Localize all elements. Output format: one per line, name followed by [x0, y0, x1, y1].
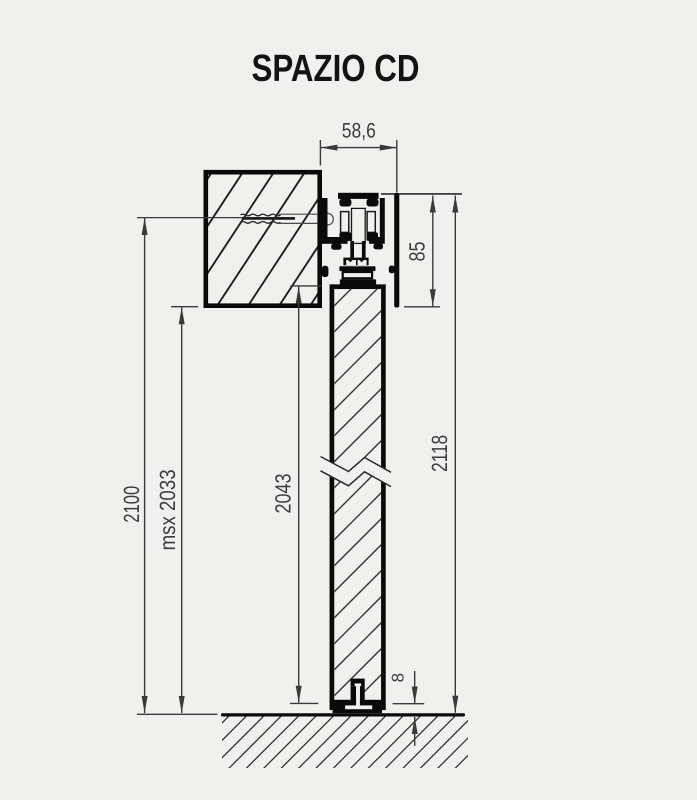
- svg-text:8: 8: [389, 673, 408, 682]
- svg-text:2100: 2100: [119, 486, 144, 523]
- svg-text:2118: 2118: [427, 435, 452, 472]
- svg-text:msx 2033: msx 2033: [155, 469, 180, 550]
- svg-text:58,6: 58,6: [342, 119, 376, 142]
- svg-text:2043: 2043: [270, 474, 295, 514]
- svg-text:85: 85: [405, 242, 430, 262]
- svg-text:SPAZIO CD: SPAZIO CD: [251, 48, 419, 90]
